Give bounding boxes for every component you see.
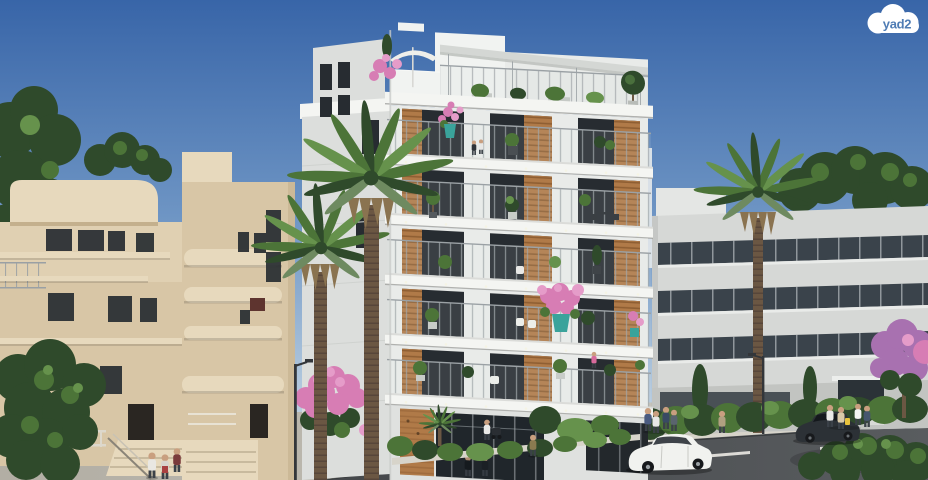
scene-svg: yad2 xyxy=(0,0,928,480)
logo-text: yad2 xyxy=(883,17,912,32)
listing-photo: yad2 xyxy=(0,0,928,480)
entrance-door xyxy=(128,404,154,446)
rounded-roof-cap xyxy=(10,180,158,226)
bauhaus-tower-left xyxy=(182,152,295,480)
balcony-railing xyxy=(0,262,46,289)
red-window xyxy=(250,298,265,311)
yellow-bag xyxy=(845,418,850,425)
tower-entrance xyxy=(182,376,288,480)
facade xyxy=(385,22,653,480)
